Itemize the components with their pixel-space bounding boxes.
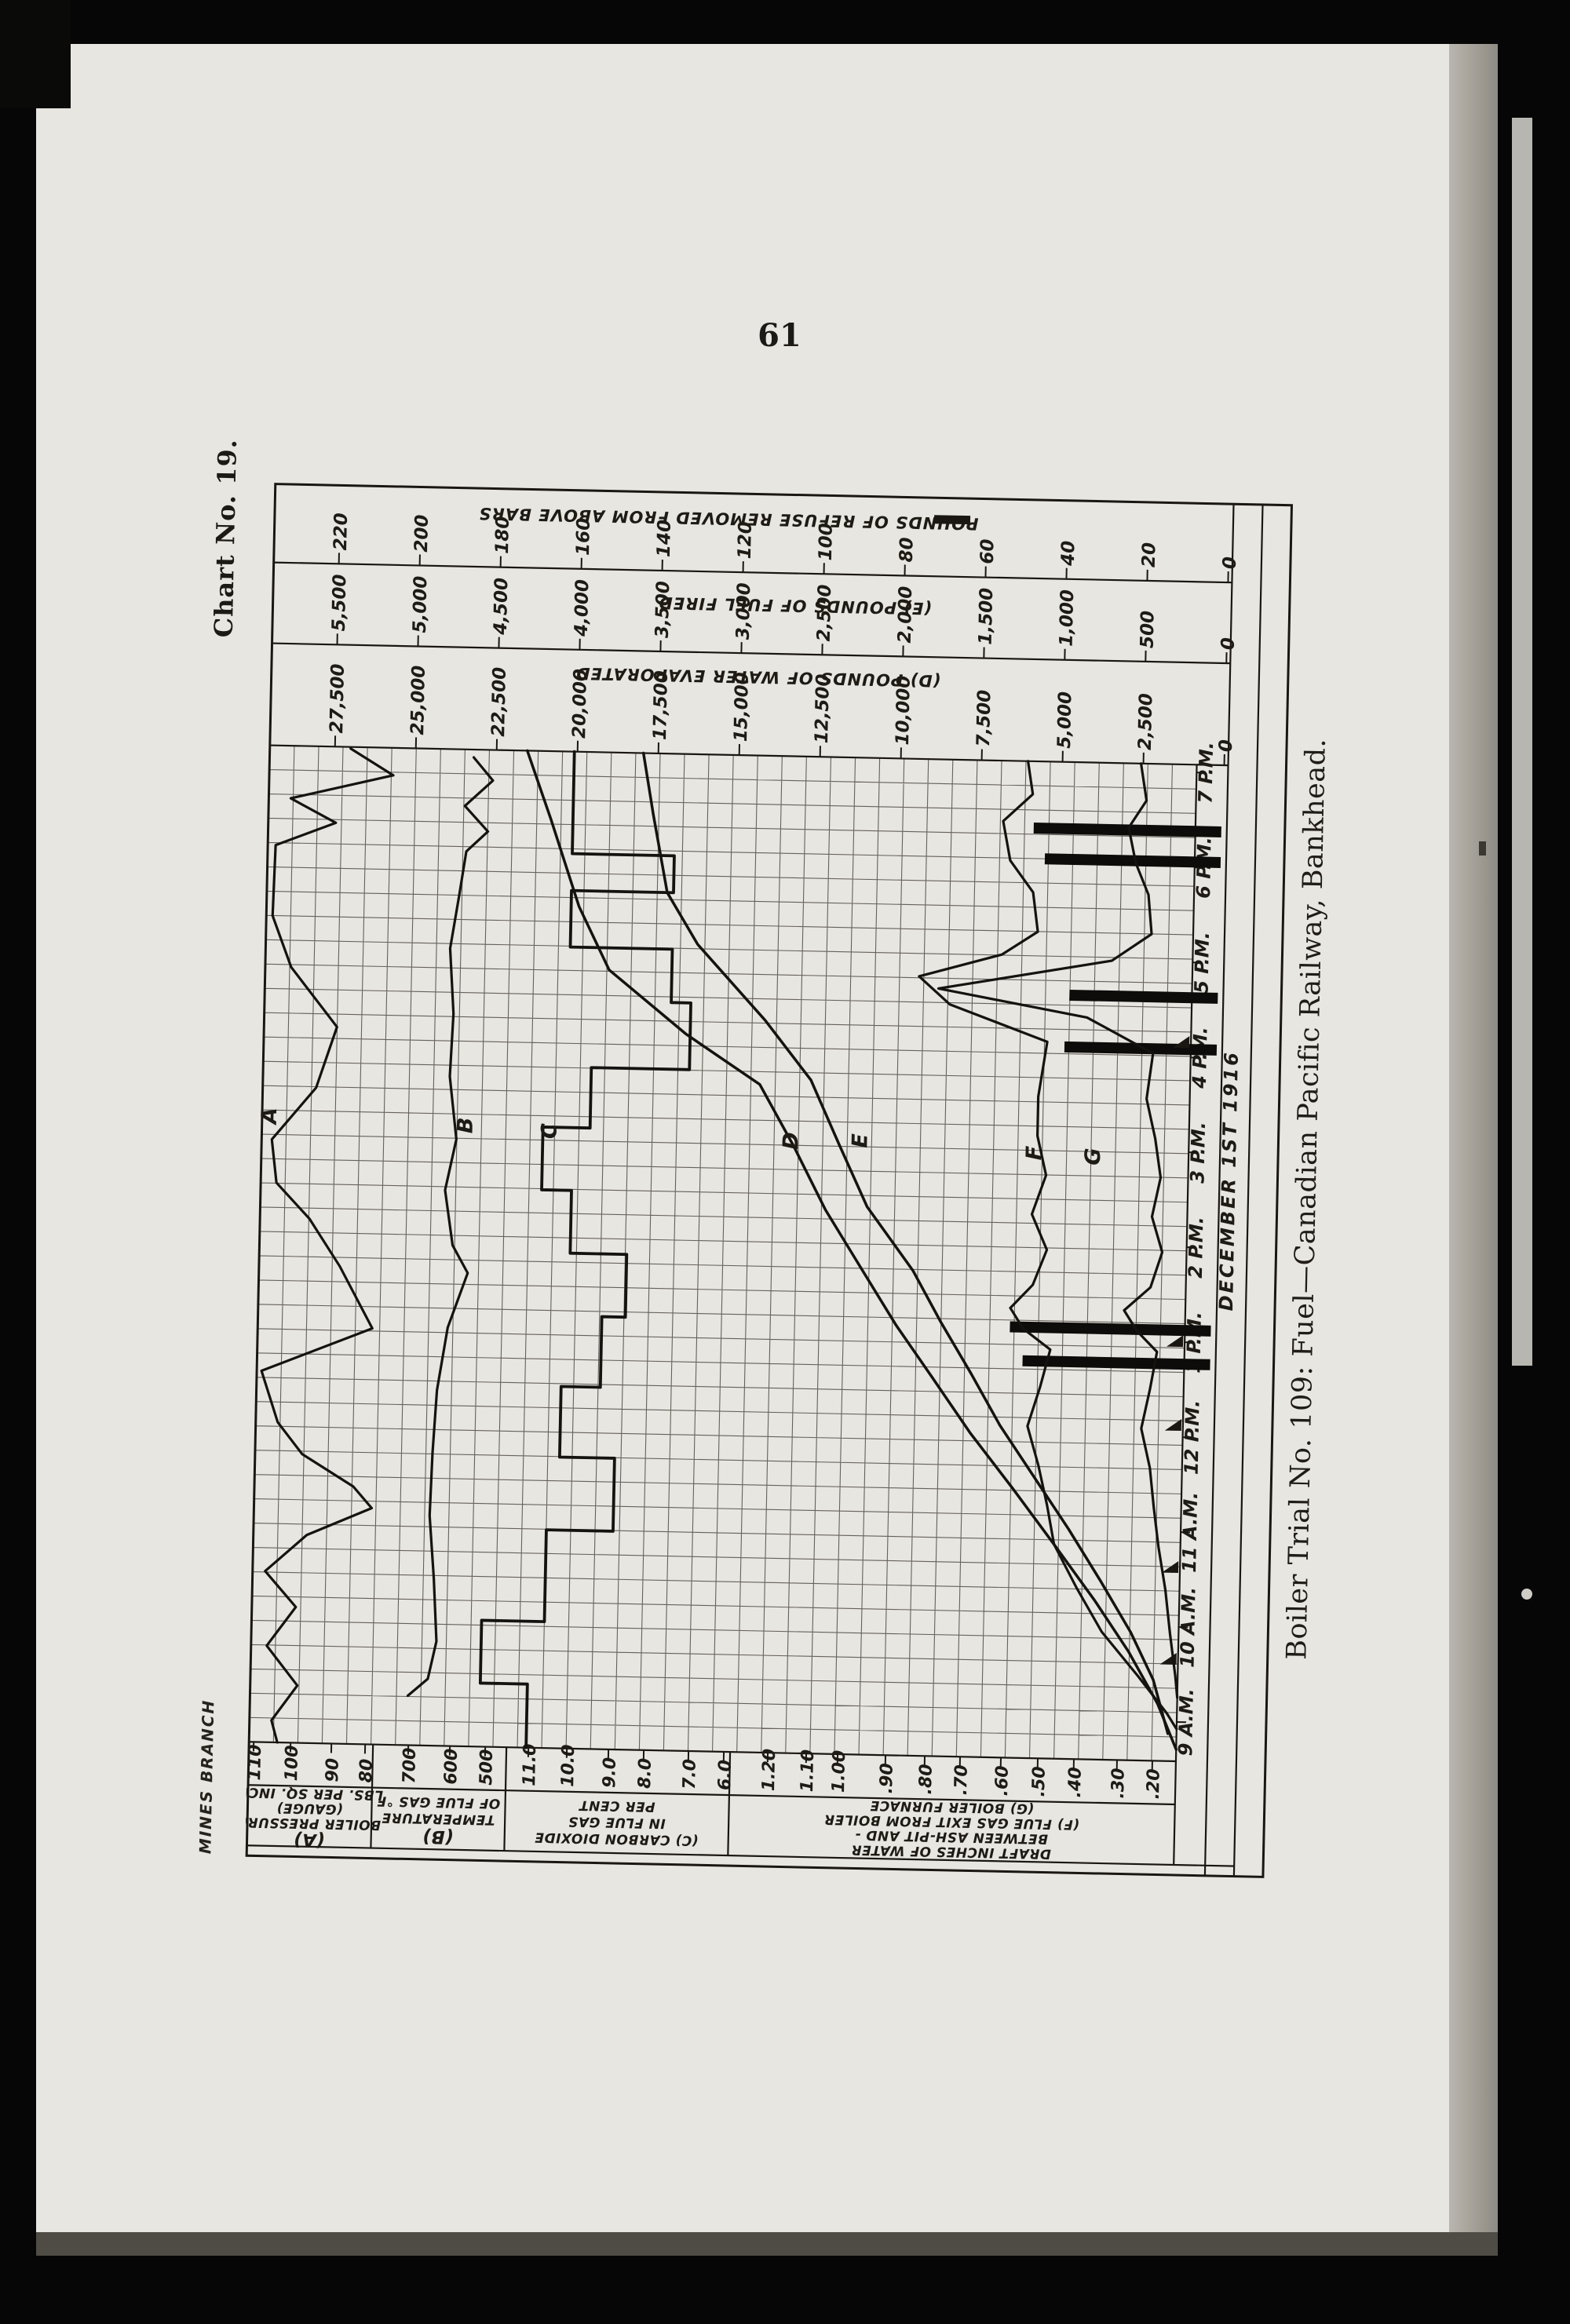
scale-label-C: PER CENT (579, 1797, 655, 1815)
bottom-scale-tick-label: 1.00 (829, 1749, 849, 1793)
top-scale-tick-label: 80 (896, 537, 918, 563)
curve-A (254, 747, 394, 1745)
top-scale-tick-label: 27,500 (327, 663, 349, 733)
top-scale-tick-label: 1,500 (976, 588, 998, 645)
bottom-scale-tick-label: 6.0 (715, 1760, 736, 1790)
bottom-scale-tick-label: .80 (916, 1764, 937, 1794)
top-scale-tick-label: 0 (1218, 637, 1239, 651)
bottom-scale-tick-label: .60 (992, 1765, 1013, 1796)
scale-label-B: TEMPERATURE (382, 1809, 495, 1827)
top-scale-tick-label: 0 (1220, 556, 1240, 570)
bottom-scale-tick-label: .20 (1144, 1768, 1164, 1799)
bottom-scale-tick-label: 500 (476, 1749, 497, 1785)
curve-letter-A: A (257, 1107, 282, 1126)
scale-box-divider (504, 1747, 506, 1851)
top-scale-tick-label: 5,000 (410, 575, 432, 633)
top-scale-ticks (335, 735, 1225, 765)
page-number: 61 (736, 317, 823, 354)
scale-label-A: (A) (293, 1829, 325, 1850)
date-label: DECEMBER 1ST 1916 (1215, 1050, 1243, 1312)
bottom-scale-tick-label: .40 (1065, 1767, 1086, 1797)
book-edge-shadow (1449, 44, 1498, 2232)
bottom-scale-tick-label: 1.10 (798, 1749, 818, 1793)
curve-letter-D: D (779, 1132, 803, 1150)
grid-lines (249, 746, 1196, 1761)
top-scale-tick-label: 200 (411, 514, 433, 553)
top-scale-tick-label: 4,000 (571, 579, 593, 637)
top-scale-tick-label: 4,500 (491, 578, 513, 636)
bottom-scale-tick-label: .90 (877, 1763, 897, 1793)
curve-B (407, 757, 493, 1697)
top-scale-tick-label: 7,500 (973, 690, 995, 747)
bottom-scale-tick-label: 11.0 (520, 1743, 540, 1786)
scan-corner-artifact (0, 0, 71, 108)
top-scale-tick-label: 40 (1058, 541, 1079, 567)
bottom-scale-tick-label: 110 (245, 1744, 265, 1780)
top-scale-tick-label: 5,500 (329, 574, 351, 631)
boiler-trial-chart: Chart No. 19. MINES BRANCH 2202001801601… (244, 476, 1294, 1910)
mines-branch-imprint: MINES BRANCH (195, 1705, 222, 1855)
scale-label-B: OF FLUE GAS °F (377, 1793, 501, 1811)
top-scale-tick-label: 1,000 (1057, 589, 1079, 647)
curve-letter-G: G (1081, 1147, 1105, 1166)
chart-frame-lines (246, 484, 1262, 1877)
top-scale-tick-label: 22,500 (488, 667, 510, 737)
top-scale-ticks (338, 633, 1227, 663)
scale-label-C: (C) CARBON DIOXIDE (535, 1829, 699, 1848)
axis-title-D: (D) POUNDS OF WATER EVAPORATED (575, 664, 941, 691)
bottom-scale-tick-label: 80 (356, 1759, 377, 1783)
curve-letter-B: B (454, 1117, 478, 1133)
bottom-scale-tick-label: .50 (1029, 1766, 1050, 1797)
chart-outer-frame (246, 484, 1291, 1877)
curve-letter-C: C (537, 1123, 561, 1140)
top-scale-tick-label: 220 (330, 513, 352, 551)
top-scale-tick-label: 5,000 (1054, 691, 1076, 749)
bottom-scale-tick-label: 8.0 (635, 1758, 655, 1789)
curve-letter-F: F (1022, 1145, 1046, 1161)
top-scale-tick-label: 500 (1137, 611, 1159, 649)
refuse-bar-legend-glyph (934, 515, 970, 524)
scan-bottom-shadow (36, 2232, 1498, 2256)
scan-streak-artifact (1512, 118, 1532, 1366)
firing-mark (1167, 1335, 1183, 1347)
chart-number-label: Chart No. 19. (209, 465, 247, 638)
curve-letter-E: E (848, 1133, 872, 1148)
bottom-scale-tick-label: 1.20 (759, 1749, 780, 1792)
bottom-scale-tick-label: .30 (1108, 1768, 1129, 1798)
bottom-scale-tick-label: 10.0 (558, 1744, 579, 1787)
scanned-page-background: 61 Chart No. 19. MINES BRANCH 2202001801… (0, 0, 1570, 2324)
scan-speck-artifact (1479, 841, 1486, 856)
bottom-scale-tick-label: .70 (951, 1764, 972, 1795)
bottom-scale-tick-label: 90 (323, 1758, 343, 1782)
bottom-scale-tick-label: 7.0 (680, 1759, 700, 1790)
top-scale-tick-label: 25,000 (407, 665, 429, 735)
top-scale-tick-label: 0 (1216, 739, 1236, 753)
axis-title-refuse: POUNDS OF REFUSE REMOVED FROM ABOVE BARS (478, 504, 979, 533)
curve-F (904, 759, 1197, 1729)
top-scale-tick-label: 20 (1139, 542, 1160, 568)
curve-C (479, 750, 696, 1751)
scan-dot-artifact (1521, 1589, 1532, 1600)
bottom-scale-tick-label: 100 (282, 1745, 302, 1781)
chart-canvas: 220200180160140120100806040200POUNDS OF … (244, 476, 1294, 1910)
axis-title-E: (E) POUNDS OF FUEL FIRED (658, 593, 932, 618)
top-scale-ticks (339, 553, 1229, 582)
curve-D (506, 750, 1196, 1749)
top-scale-tick-label: 2,500 (1135, 693, 1157, 750)
bottom-scale-tick-label: 700 (400, 1747, 420, 1783)
top-scale-tick-label: 60 (977, 538, 999, 564)
bottom-scale-tick-label: 9.0 (600, 1757, 620, 1788)
scale-label-A: LBS. PER SQ. INCH (244, 1784, 383, 1803)
scale-label-B: (B) (422, 1826, 454, 1847)
scale-label-C: IN FLUE GAS (568, 1813, 666, 1831)
firing-mark (1173, 1036, 1189, 1048)
bottom-scale-tick-label: 600 (441, 1748, 462, 1784)
